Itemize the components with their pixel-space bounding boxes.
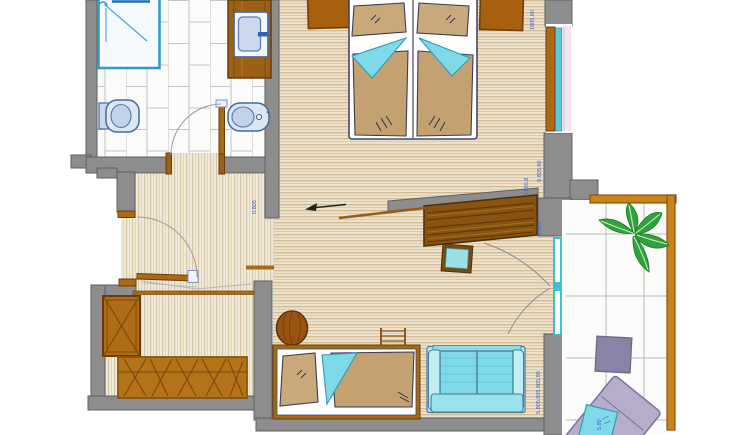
svg-text:0.805.80: 0.805.80	[537, 161, 543, 182]
svg-text:5.805: 5.805	[537, 222, 543, 236]
svg-text:0.805.8: 0.805.8	[524, 178, 530, 196]
svg-text:1805.80: 1805.80	[530, 10, 536, 30]
svg-text:5.805.805.805.80: 5.805.805.805.80	[536, 371, 542, 414]
svg-text:5.80: 5.80	[597, 419, 603, 430]
svg-text:0.805: 0.805	[252, 200, 258, 214]
